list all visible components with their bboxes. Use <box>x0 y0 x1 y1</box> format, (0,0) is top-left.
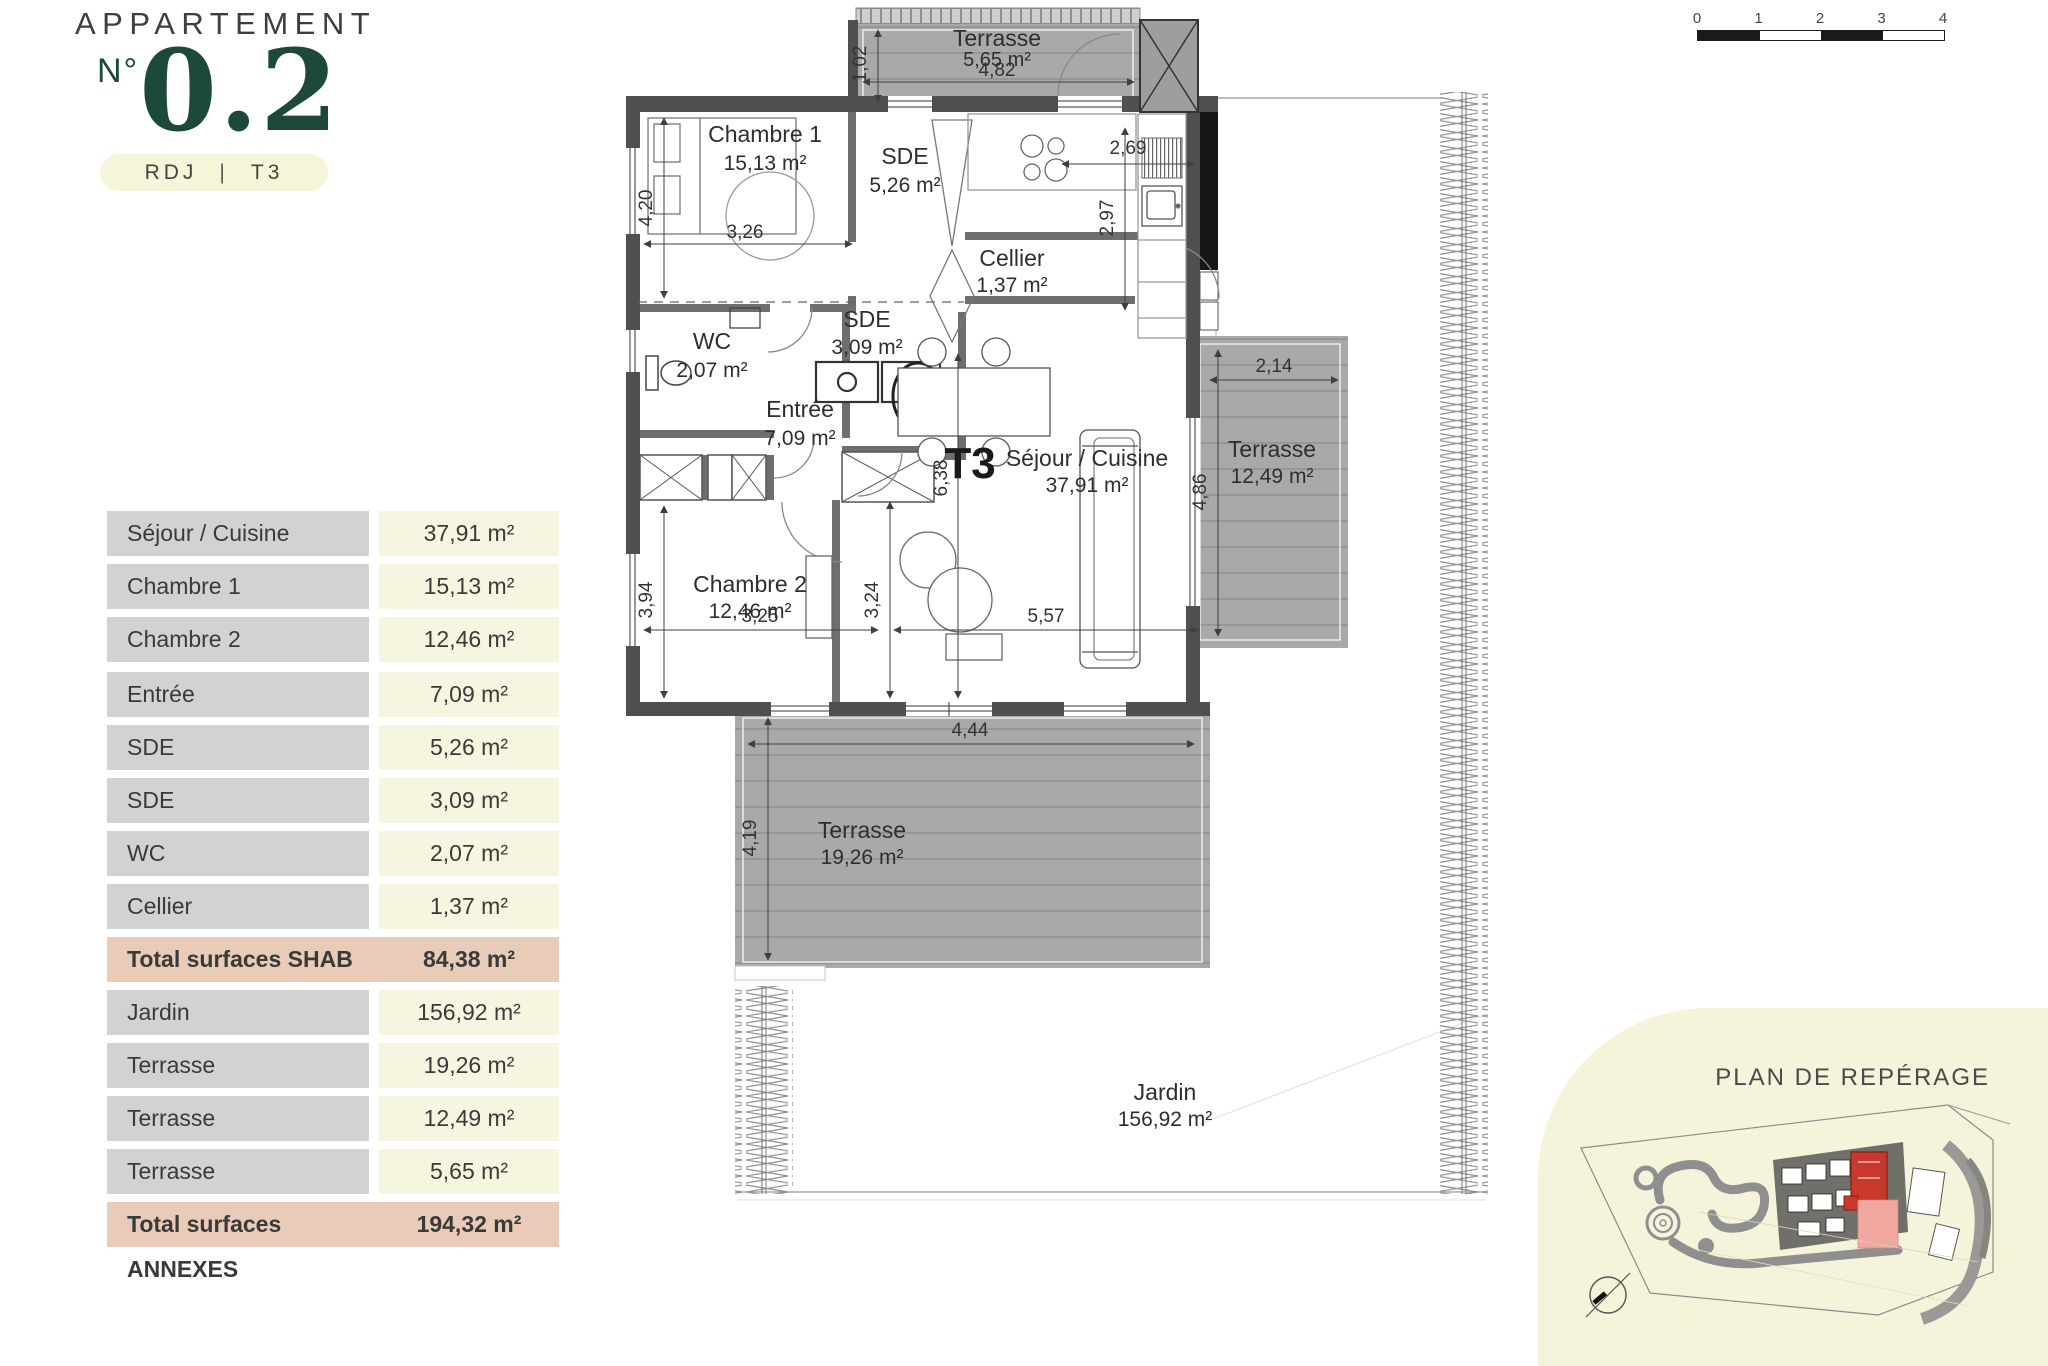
svg-text:1,37 m²: 1,37 m² <box>976 274 1047 297</box>
compass-icon <box>1586 1273 1630 1317</box>
dim-label: 3,94 <box>636 581 657 618</box>
row-label: WC <box>107 831 369 876</box>
badge-separator: | <box>219 161 228 185</box>
row-label: Séjour / Cuisine <box>107 511 369 556</box>
table-row: Séjour / Cuisine37,91 m² <box>107 511 559 556</box>
svg-text:Terrasse: Terrasse <box>1228 436 1316 462</box>
dim-label: 3,24 <box>862 581 883 618</box>
table-row: Chambre 212,46 m² <box>107 617 559 662</box>
row-value: 5,26 m² <box>379 725 559 770</box>
total-shab-row: Total surfaces SHAB84,38 m² <box>107 937 559 982</box>
floor-plan-svg: 4,82 1,02 4,20 3,26 2,69 2,97 2,14 4,86 … <box>560 0 1520 1270</box>
table-row: Terrasse12,49 m² <box>107 1096 559 1141</box>
svg-text:Chambre 2: Chambre 2 <box>693 571 807 597</box>
svg-text:Jardin: Jardin <box>1134 1079 1197 1105</box>
table-row: SDE3,09 m² <box>107 778 559 823</box>
apartment-header: APPARTEMENT N° 0.2 RDJ | T3 <box>75 6 395 191</box>
row-label: Jardin <box>107 990 369 1035</box>
dim-label: 3,26 <box>727 222 764 243</box>
svg-text:Terrasse: Terrasse <box>818 817 906 843</box>
dim-label: 2,97 <box>1097 200 1118 237</box>
floor-plan: 4,82 1,02 4,20 3,26 2,69 2,97 2,14 4,86 … <box>560 0 1520 1270</box>
badge-type: T3 <box>251 161 284 185</box>
number-prefix: N° <box>97 52 139 91</box>
scale-segment <box>1698 31 1760 40</box>
badge-floor: RDJ <box>145 161 198 185</box>
row-value: 2,07 m² <box>379 831 559 876</box>
svg-text:5,26 m²: 5,26 m² <box>869 174 940 197</box>
total-label: Total surfaces SHAB <box>107 937 369 982</box>
terrace-bottom <box>735 712 1210 980</box>
unit-type-label: T3 <box>944 439 995 488</box>
building-cluster <box>1773 1142 1908 1250</box>
row-label: Cellier <box>107 884 369 929</box>
row-label: Terrasse <box>107 1096 369 1141</box>
scale-bar: 0 1 2 3 4 <box>1697 10 1945 44</box>
dim-label: 4,44 <box>952 720 989 741</box>
highlighted-unit <box>1851 1152 1887 1200</box>
row-value: 5,65 m² <box>379 1149 559 1194</box>
total-value: 84,38 m² <box>379 937 559 982</box>
scale-tick: 4 <box>1939 10 1947 27</box>
svg-text:Entrée: Entrée <box>766 396 834 422</box>
table-row: Entrée7,09 m² <box>107 672 559 717</box>
scale-tick: 1 <box>1754 10 1762 27</box>
total-value: 194,32 m² <box>379 1202 559 1247</box>
row-value: 1,37 m² <box>379 884 559 929</box>
svg-text:5,65 m²: 5,65 m² <box>963 49 1031 71</box>
table-row: Terrasse19,26 m² <box>107 1043 559 1088</box>
reperage-panel: PLAN DE REPÉRAGE <box>1538 1008 2048 1366</box>
technical-shaft <box>1200 112 1218 270</box>
coffee-tables <box>900 532 992 632</box>
total-label: Total surfaces ANNEXES <box>107 1202 369 1247</box>
access-road <box>1907 1145 1987 1319</box>
floorplan-sheet: { "header": { "title": "APPARTEMENT", "n… <box>0 0 2048 1366</box>
desk <box>806 556 832 638</box>
svg-text:WC: WC <box>693 328 731 354</box>
scale-segment <box>1883 31 1945 40</box>
row-value: 12,46 m² <box>379 617 559 662</box>
surface-table: Séjour / Cuisine37,91 m² Chambre 115,13 … <box>107 511 559 1255</box>
terrace-right <box>1192 336 1348 648</box>
reperage-title: PLAN DE REPÉRAGE <box>1715 1064 1990 1092</box>
room-label-entree: Entrée7,09 m² <box>764 396 835 450</box>
svg-text:156,92 m²: 156,92 m² <box>1118 1108 1213 1131</box>
tv-bench <box>946 634 1002 660</box>
dim-label: 4,19 <box>740 820 761 857</box>
number-value: 0.2 <box>139 36 340 148</box>
table-row: Terrasse5,65 m² <box>107 1149 559 1194</box>
table-row: Chambre 115,13 m² <box>107 564 559 609</box>
dim-label: 4,20 <box>636 190 657 227</box>
room-label-wc: WC2,07 m² <box>676 328 747 382</box>
hedge-right <box>1440 92 1488 1194</box>
scale-tick: 0 <box>1693 10 1701 27</box>
row-label: Chambre 2 <box>107 617 369 662</box>
dim-label: 4,86 <box>1190 474 1211 511</box>
svg-text:12,46 m²: 12,46 m² <box>709 600 792 623</box>
row-value: 37,91 m² <box>379 511 559 556</box>
row-label: SDE <box>107 778 369 823</box>
table-row: Cellier1,37 m² <box>107 884 559 929</box>
svg-text:SDE: SDE <box>843 306 890 332</box>
dim-label: 5,57 <box>1028 606 1065 627</box>
row-value: 7,09 m² <box>379 672 559 717</box>
apartment-number: N° 0.2 <box>97 36 395 148</box>
row-value: 12,49 m² <box>379 1096 559 1141</box>
row-value: 156,92 m² <box>379 990 559 1035</box>
row-label: Terrasse <box>107 1149 369 1194</box>
closets <box>640 452 934 502</box>
dim-label: 2,69 <box>1110 138 1147 159</box>
hedge-bottom-left <box>735 986 793 1194</box>
row-label: Terrasse <box>107 1043 369 1088</box>
table-row: Jardin156,92 m² <box>107 990 559 1035</box>
dim-label: 2,14 <box>1256 356 1293 377</box>
scale-tick: 2 <box>1816 10 1824 27</box>
row-value: 19,26 m² <box>379 1043 559 1088</box>
svg-text:Séjour / Cuisine: Séjour / Cuisine <box>1006 445 1168 471</box>
dim-label: 1,02 <box>850 46 871 83</box>
scale-segment <box>1821 31 1883 40</box>
row-label: SDE <box>107 725 369 770</box>
scale-bar-segments <box>1697 30 1945 41</box>
total-annexes-row: Total surfaces ANNEXES194,32 m² <box>107 1202 559 1247</box>
svg-text:SDE: SDE <box>881 143 928 169</box>
scale-segment <box>1760 31 1822 40</box>
room-label-sde1: SDE5,26 m² <box>869 143 940 197</box>
svg-text:12,49 m²: 12,49 m² <box>1231 465 1314 488</box>
room-label-chambre2: Chambre 212,46 m² <box>693 571 807 623</box>
svg-text:2,07 m²: 2,07 m² <box>676 359 747 382</box>
svg-text:15,13 m²: 15,13 m² <box>724 152 807 175</box>
row-value: 3,09 m² <box>379 778 559 823</box>
room-label-cellier: Cellier1,37 m² <box>976 245 1047 297</box>
svg-text:3,09 m²: 3,09 m² <box>831 336 902 359</box>
scale-tick: 3 <box>1877 10 1885 27</box>
room-label-terrasse-haut: Terrasse5,65 m² <box>953 25 1041 71</box>
svg-text:Terrasse: Terrasse <box>953 25 1041 51</box>
site-plan <box>1548 1100 2038 1360</box>
svg-text:7,09 m²: 7,09 m² <box>764 427 835 450</box>
svg-text:Cellier: Cellier <box>979 245 1045 271</box>
room-label-jardin: Jardin156,92 m² <box>1118 1079 1213 1131</box>
svg-text:Chambre 1: Chambre 1 <box>708 121 822 147</box>
kitchen <box>968 114 1186 338</box>
row-label: Chambre 1 <box>107 564 369 609</box>
table-row: WC2,07 m² <box>107 831 559 876</box>
row-value: 15,13 m² <box>379 564 559 609</box>
floor-type-badge: RDJ | T3 <box>100 154 328 191</box>
row-label: Entrée <box>107 672 369 717</box>
svg-text:37,91 m²: 37,91 m² <box>1046 474 1129 497</box>
svg-text:19,26 m²: 19,26 m² <box>821 846 904 869</box>
table-row: SDE5,26 m² <box>107 725 559 770</box>
highlighted-garden <box>1858 1200 1898 1248</box>
